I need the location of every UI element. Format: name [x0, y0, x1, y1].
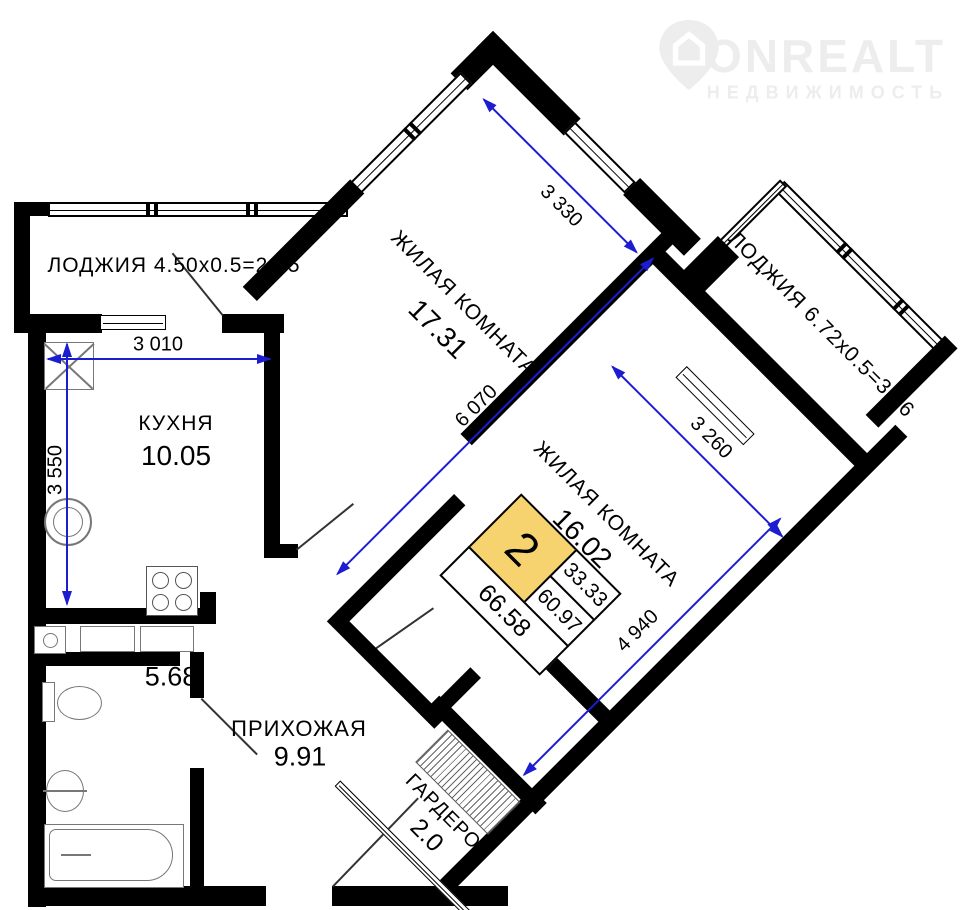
arrow-down-icon: [332, 561, 350, 579]
bathroom-sink: [46, 770, 84, 812]
arrow-right-icon: [257, 354, 272, 364]
cabinet: [80, 626, 135, 652]
watermark-subtitle: НЕДВИЖИМОСТЬ: [707, 83, 949, 104]
wall: [243, 179, 365, 301]
burner: [152, 594, 169, 611]
arrow-down-icon: [62, 591, 72, 606]
bathtub-drain: [61, 854, 91, 856]
arrow-up-icon: [62, 342, 72, 357]
hallway-name: ПРИХОЖАЯ: [231, 716, 367, 742]
window-mullion: [154, 202, 158, 217]
arrow-left-icon: [46, 354, 61, 364]
loggia-glazing: [774, 181, 954, 361]
loggia-right-label: ЛОДЖИЯ 6.72х0.5=3.36: [723, 227, 919, 423]
burner: [152, 572, 169, 589]
window: [564, 121, 636, 193]
arrow-left-icon: [608, 362, 626, 380]
cabinet: [140, 626, 194, 652]
dim-line-kitchen-width: [48, 358, 270, 360]
sink-inner: [53, 507, 83, 537]
window: [48, 202, 348, 217]
living1-name: ЖИЛАЯ КОМНАТА: [386, 226, 541, 381]
wall: [434, 425, 907, 898]
door-leaf: [296, 503, 354, 550]
burner: [175, 594, 192, 611]
sink-faucet-line: [43, 790, 87, 792]
kitchen-name: КУХНЯ: [138, 412, 213, 436]
wall: [14, 314, 102, 333]
stamp-rooms-count: 2: [495, 520, 551, 576]
window-mullion: [146, 202, 150, 217]
washer-door: [43, 633, 58, 648]
arrow-down-icon: [519, 762, 537, 780]
hallway-area: 9.91: [274, 742, 327, 773]
toilet-bowl: [57, 686, 102, 720]
burner: [175, 572, 192, 589]
bathroom-area: 5.68: [145, 662, 198, 693]
kitchen-area: 10.05: [141, 440, 211, 472]
dim-living2-length: 4 940: [612, 605, 664, 657]
window-mullion: [254, 202, 258, 217]
toilet-tank: [42, 682, 55, 722]
wall: [337, 494, 466, 623]
door-leaf: [372, 608, 434, 652]
arrow-left-icon: [479, 95, 497, 113]
washing-machine: [34, 626, 66, 654]
bathtub: [44, 824, 184, 888]
dim-living1-width: 3 330: [535, 180, 587, 232]
stove: [146, 566, 198, 616]
wall: [332, 886, 508, 906]
wall: [200, 592, 216, 624]
window-mullion: [246, 202, 250, 217]
dim-kitchen-height: 3 550: [45, 445, 68, 495]
wall: [28, 886, 266, 906]
door-leaf: [332, 798, 419, 888]
watermark-brand: ONREALT: [706, 29, 946, 83]
wall: [14, 202, 50, 216]
floor-plan: ONREALT НЕДВИЖИМОСТЬ: [0, 0, 960, 910]
wall: [14, 202, 30, 322]
dim-kitchen-width: 3 010: [133, 334, 183, 357]
window-sill: [100, 315, 166, 330]
wall: [264, 544, 298, 558]
wall: [190, 768, 204, 890]
wall: [327, 610, 446, 729]
kitchen-round-sink: [44, 498, 92, 546]
